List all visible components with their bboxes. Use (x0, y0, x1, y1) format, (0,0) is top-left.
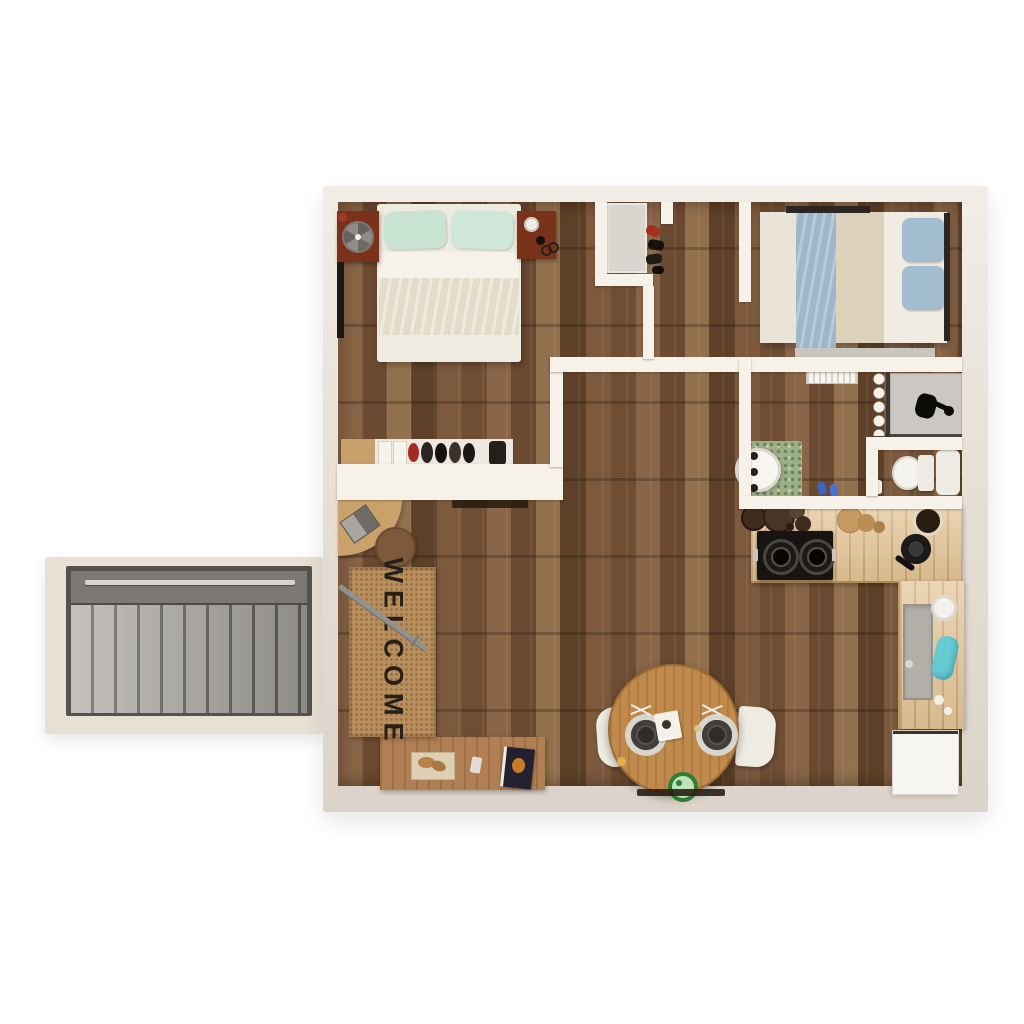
sink-knob2 (750, 468, 758, 476)
plate-stack4 (795, 516, 811, 532)
napkin-box-dot (662, 720, 671, 729)
glasses-ring2 (548, 242, 559, 253)
kitchen-sink (903, 604, 933, 700)
fridge (893, 731, 958, 794)
wall-bedroom1-east (550, 357, 563, 467)
green-bowl (668, 772, 698, 802)
bed1-pillow-right (450, 210, 513, 250)
shower-knob (944, 406, 954, 416)
bed1-pillow-left (383, 210, 446, 250)
stair-railing (71, 571, 307, 603)
welcome-mat: WELCOME (349, 567, 436, 737)
cutting-board3 (873, 521, 885, 533)
hanging-clothes-2 (435, 443, 447, 463)
bed2-pillow-bottom (902, 266, 944, 310)
bed2-beige-blanket (836, 212, 884, 343)
wall-closet-stub (661, 202, 673, 224)
burner-right (799, 539, 835, 575)
plate-stack5 (786, 523, 794, 531)
wardrobe-wood-section (341, 439, 375, 466)
storage-box1 (378, 441, 392, 466)
toilet-mat (936, 450, 960, 495)
storage-box2 (393, 441, 407, 466)
cooktop (757, 531, 833, 580)
staircase (66, 566, 312, 716)
green-bowl-dot (676, 780, 682, 786)
wardrobe-shelf (341, 439, 513, 466)
hanging-clothes-4 (463, 443, 475, 463)
bed2-cream-section (760, 212, 796, 343)
wall-hall-south (550, 357, 962, 372)
shower-frame-left (886, 371, 890, 437)
bed2-frame-top (786, 206, 870, 213)
bedroom1-door-threshold (452, 500, 528, 508)
nightstand-left (337, 211, 379, 262)
wall-tv (337, 262, 344, 338)
fan-hub (355, 234, 361, 240)
shower-curtain (872, 372, 886, 436)
hanging-clothes-red (408, 443, 419, 462)
welcome-mat-text: WELCOME (377, 557, 408, 747)
bed1-sheet-fold (379, 252, 519, 278)
pan-inner (908, 541, 924, 557)
bed2-frame-right (944, 213, 950, 341)
bedroom2-bed (760, 212, 947, 343)
cutting-board2 (857, 514, 875, 532)
stair-steps (71, 603, 307, 713)
bed1-blanket (379, 278, 519, 335)
dark-item (536, 236, 545, 245)
counter-bottle1 (934, 695, 944, 705)
plate-right (702, 720, 732, 750)
wall-bedroom2-west (739, 202, 751, 302)
counter-bottle2 (944, 707, 952, 715)
handrail (85, 580, 295, 585)
decor-red-dot (338, 213, 347, 222)
hanging-clothes-1 (421, 442, 433, 463)
wall-bedroom1-south (337, 464, 563, 500)
toilet-tank (918, 455, 934, 491)
bedroom1-bed (377, 204, 521, 362)
lemon1 (617, 757, 626, 766)
dining-chair-right (735, 706, 777, 769)
counter-jar (913, 506, 943, 536)
floor-plan-render: WELCOME (0, 0, 1024, 1024)
bed2-blue-throw (796, 212, 836, 351)
garment-bag (489, 441, 506, 465)
cooktop-handle-left (754, 549, 758, 561)
lemon2 (694, 725, 701, 732)
sink-knob3 (750, 484, 758, 492)
cooktop-handle-right (832, 549, 836, 561)
wall-corridor (643, 286, 654, 359)
bed1-footer (379, 335, 519, 360)
wall-bathroom-west (739, 357, 751, 509)
wall-toilet-west (866, 450, 878, 496)
sink-faucet (905, 660, 913, 668)
dish-plate (931, 595, 957, 621)
wall-bathroom-south (739, 496, 962, 509)
cup-on-nightstand (524, 217, 539, 232)
wall-closet-bottom (595, 274, 653, 286)
sink-knob1 (750, 452, 758, 460)
closet-floor-panel (607, 203, 647, 273)
nightstand-right (517, 211, 556, 259)
door-handle (410, 635, 420, 647)
patio-door-threshold (637, 789, 725, 796)
burner-left (763, 539, 799, 575)
entry-porch (45, 557, 323, 734)
bed2-pillow-top (902, 218, 944, 262)
shoe-black3 (652, 266, 664, 274)
hanging-clothes-3 (449, 442, 461, 463)
wall-shower-south (866, 437, 962, 450)
